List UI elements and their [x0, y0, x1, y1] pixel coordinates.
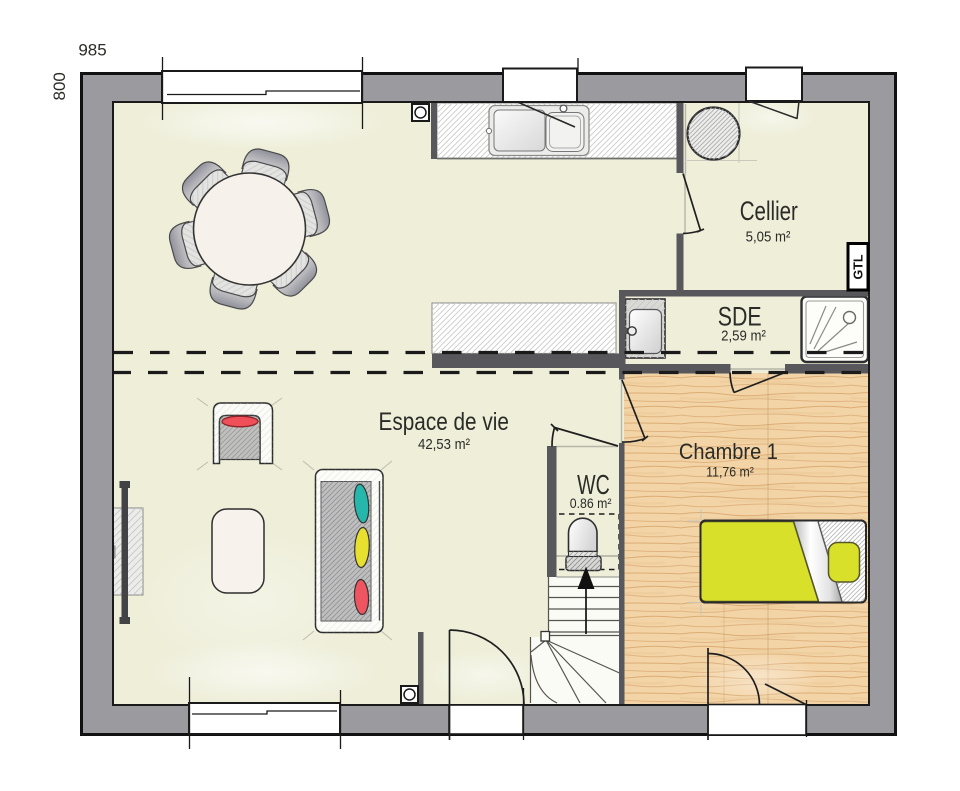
- svg-text:42,53 m²: 42,53 m²: [418, 435, 470, 452]
- svg-text:Chambre 1: Chambre 1: [679, 440, 778, 464]
- svg-text:Cellier: Cellier: [740, 196, 798, 226]
- svg-text:2,59 m²: 2,59 m²: [721, 327, 766, 344]
- svg-text:800: 800: [50, 72, 69, 100]
- svg-text:5,05 m²: 5,05 m²: [746, 228, 791, 245]
- svg-text:GTL: GTL: [852, 254, 866, 279]
- svg-text:11,76 m²: 11,76 m²: [706, 464, 754, 480]
- svg-text:0.86 m²: 0.86 m²: [570, 495, 612, 511]
- svg-text:985: 985: [78, 40, 106, 59]
- svg-text:Espace de vie: Espace de vie: [379, 407, 509, 435]
